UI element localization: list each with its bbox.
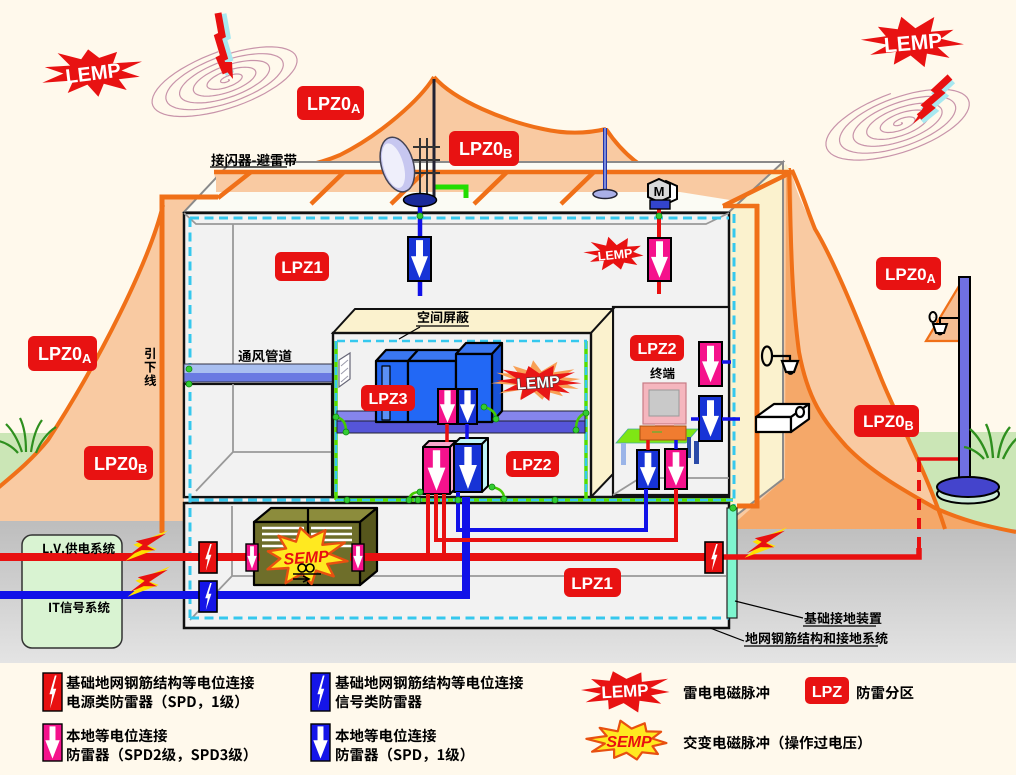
svg-text:M: M — [654, 184, 665, 199]
svg-text:SEMP: SEMP — [606, 734, 652, 751]
svg-text:LPZ1: LPZ1 — [571, 574, 613, 593]
svg-text:LPZ: LPZ — [812, 684, 842, 701]
svg-text:LEMP: LEMP — [516, 374, 560, 394]
svg-text:LPZ2: LPZ2 — [512, 457, 551, 474]
svg-text:LPZ3: LPZ3 — [368, 391, 407, 408]
svg-text:LPZ2: LPZ2 — [637, 341, 676, 358]
svg-text:LPZ1: LPZ1 — [281, 258, 323, 277]
svg-text:LEMP: LEMP — [601, 681, 649, 702]
